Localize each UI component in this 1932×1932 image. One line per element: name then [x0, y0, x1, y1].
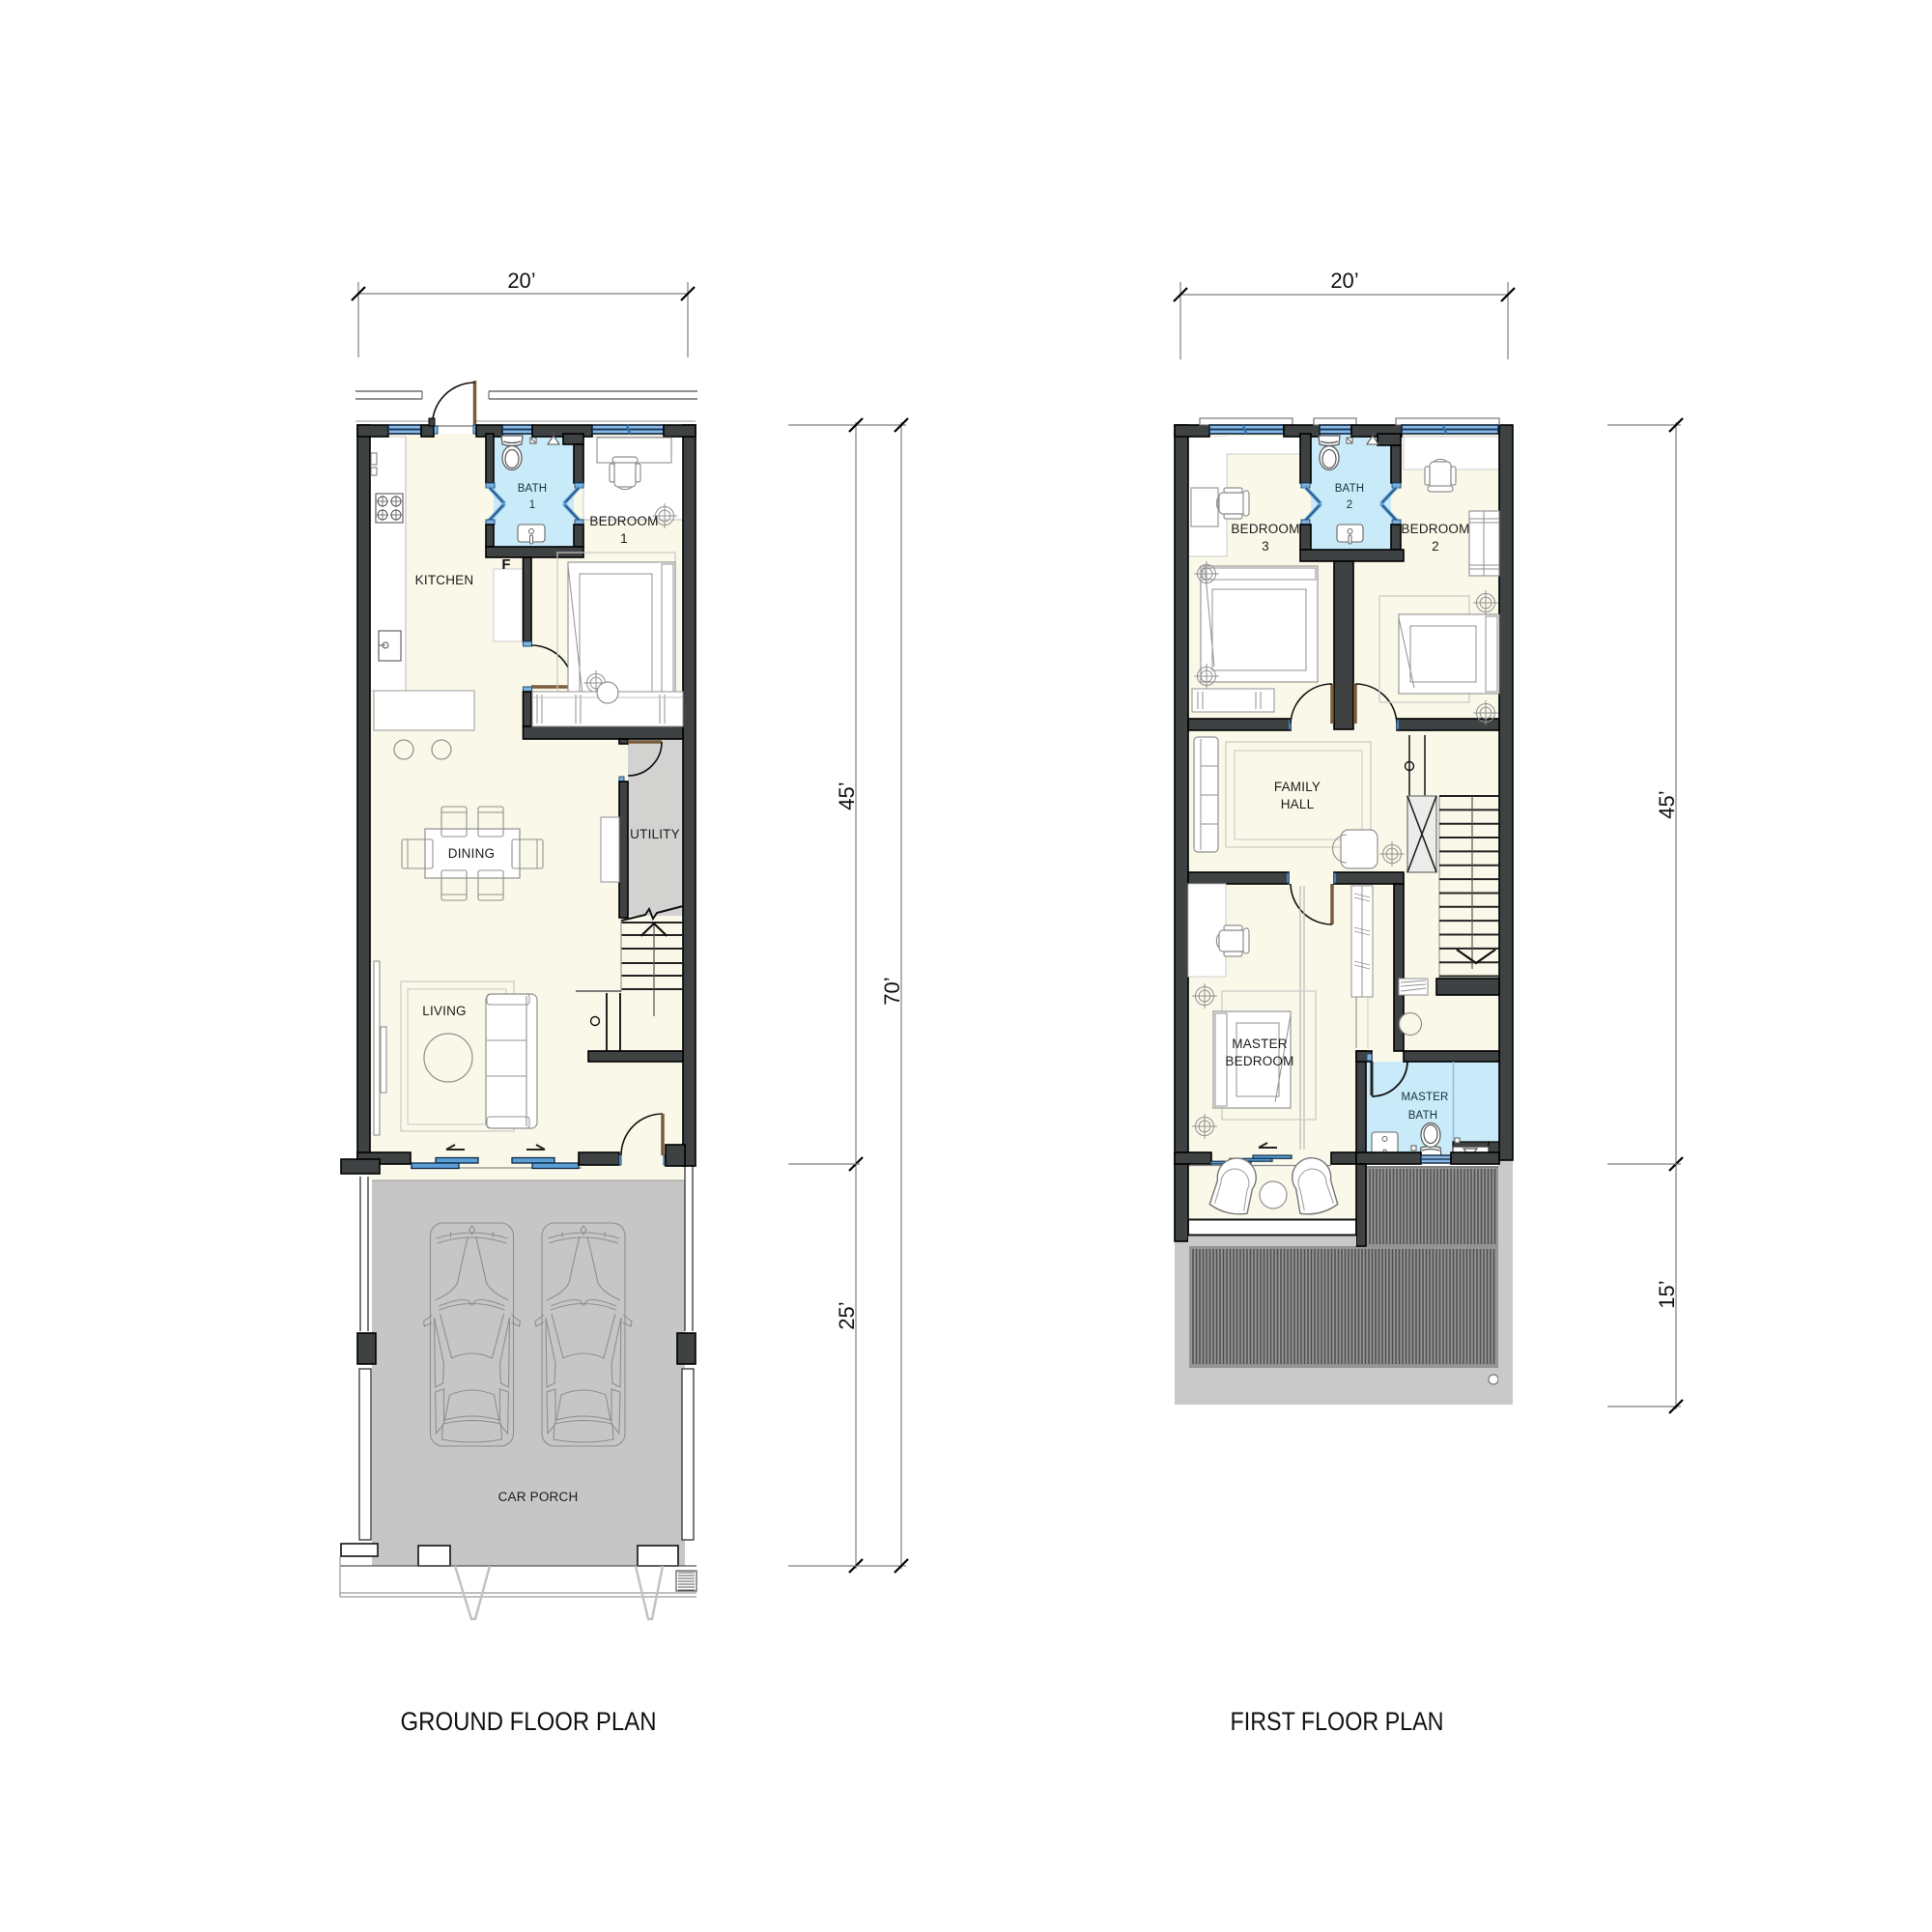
svg-text:LIVING: LIVING	[422, 1004, 466, 1018]
svg-text:CAR PORCH: CAR PORCH	[498, 1490, 579, 1504]
svg-text:20’: 20’	[507, 269, 535, 293]
svg-text:FIRST FLOOR PLAN: FIRST FLOOR PLAN	[1231, 1707, 1444, 1736]
svg-text:20’: 20’	[1330, 269, 1358, 293]
svg-text:3: 3	[1262, 539, 1269, 554]
svg-text:DINING: DINING	[448, 846, 495, 861]
svg-text:GROUND FLOOR PLAN: GROUND FLOOR PLAN	[401, 1707, 657, 1736]
svg-text:BEDROOM: BEDROOM	[1231, 522, 1299, 536]
svg-text:F: F	[501, 556, 510, 573]
svg-text:1: 1	[529, 499, 536, 511]
svg-text:KITCHEN: KITCHEN	[415, 573, 474, 587]
svg-text:MASTER: MASTER	[1401, 1092, 1448, 1103]
svg-text:BATH: BATH	[1408, 1110, 1438, 1122]
svg-text:MASTER: MASTER	[1232, 1037, 1288, 1051]
svg-text:1: 1	[620, 531, 628, 546]
svg-text:UTILITY: UTILITY	[630, 827, 680, 841]
svg-text:BATH: BATH	[1335, 483, 1365, 495]
svg-text:BEDROOM: BEDROOM	[1225, 1054, 1293, 1068]
svg-text:25’: 25’	[835, 1301, 859, 1329]
svg-text:BATH: BATH	[518, 483, 548, 495]
svg-text:70’: 70’	[880, 977, 904, 1005]
svg-text:FAMILY: FAMILY	[1274, 780, 1321, 794]
svg-text:2: 2	[1347, 499, 1353, 511]
svg-text:15’: 15’	[1655, 1280, 1679, 1308]
svg-text:HALL: HALL	[1281, 797, 1315, 811]
svg-text:45’: 45’	[1655, 790, 1679, 818]
svg-text:2: 2	[1432, 539, 1439, 554]
svg-text:BEDROOM: BEDROOM	[589, 514, 658, 528]
svg-text:BEDROOM: BEDROOM	[1401, 522, 1469, 536]
svg-text:45’: 45’	[835, 781, 859, 810]
